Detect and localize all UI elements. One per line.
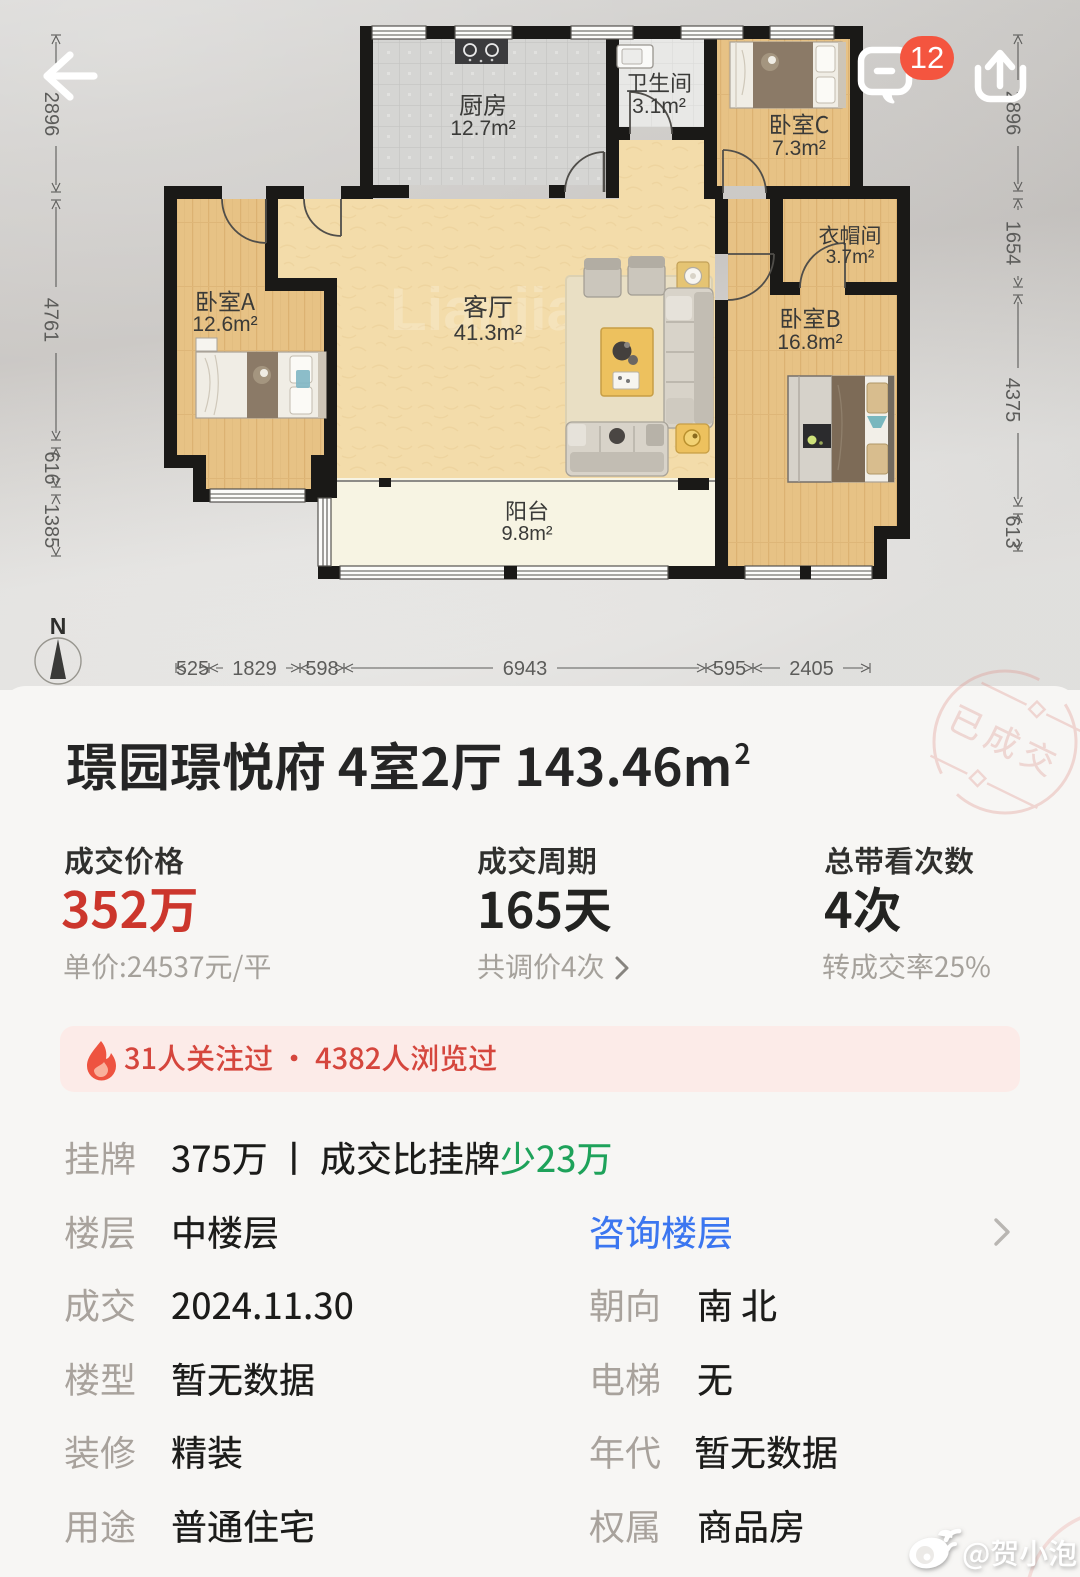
svg-text:525: 525 bbox=[176, 658, 209, 680]
svg-text:1385: 1385 bbox=[40, 504, 62, 549]
svg-text:1654: 1654 bbox=[1002, 221, 1024, 266]
svg-text:N: N bbox=[50, 613, 67, 639]
svg-text:12: 12 bbox=[910, 40, 944, 75]
svg-text:12.6m²: 12.6m² bbox=[192, 313, 257, 336]
svg-text:41.3m²: 41.3m² bbox=[454, 320, 522, 345]
svg-text:2896: 2896 bbox=[40, 92, 62, 137]
svg-text:613: 613 bbox=[1001, 515, 1023, 548]
svg-text:16.8m²: 16.8m² bbox=[777, 331, 842, 354]
svg-text:6943: 6943 bbox=[503, 658, 548, 680]
svg-text:3.1m²: 3.1m² bbox=[632, 95, 686, 118]
svg-text:9.8m²: 9.8m² bbox=[501, 523, 552, 545]
svg-text:1829: 1829 bbox=[232, 658, 277, 680]
svg-text:616: 616 bbox=[40, 451, 62, 484]
svg-text:7.3m²: 7.3m² bbox=[772, 137, 826, 160]
svg-text:4375: 4375 bbox=[1001, 378, 1023, 423]
svg-text:2405: 2405 bbox=[789, 658, 834, 680]
svg-text:3.7m²: 3.7m² bbox=[826, 247, 875, 268]
svg-text:598: 598 bbox=[305, 658, 338, 680]
svg-text:4761: 4761 bbox=[40, 298, 62, 343]
svg-text:12.7m²: 12.7m² bbox=[450, 117, 515, 140]
svg-text:595: 595 bbox=[713, 658, 746, 680]
